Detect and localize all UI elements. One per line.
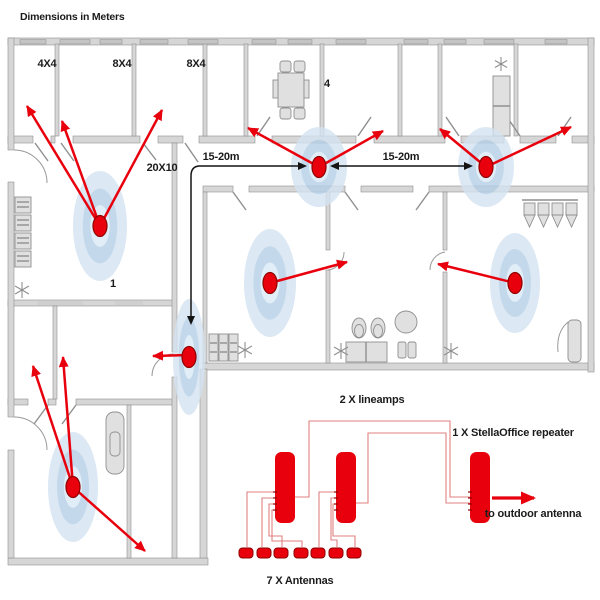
window (336, 40, 366, 45)
wire (356, 433, 470, 503)
room-label-8x4-b: 8X4 (187, 58, 207, 70)
window (288, 40, 312, 45)
door-swing-arc (152, 354, 174, 376)
room-label-1: 1 (110, 278, 116, 290)
schematic-antenna (257, 548, 271, 558)
wall (53, 306, 57, 399)
wall (8, 558, 208, 565)
antenna-dot (263, 273, 277, 294)
wall (158, 136, 183, 143)
wiring-schematic-layer (239, 421, 534, 558)
wall (326, 270, 330, 363)
antenna-dot (479, 157, 493, 178)
window (545, 40, 567, 45)
door-swing-arc (558, 322, 568, 352)
wall (172, 377, 177, 558)
wall (361, 186, 413, 192)
door-leaf (143, 143, 156, 160)
radiator-box (15, 197, 31, 213)
snowflake-icon (21, 289, 23, 291)
wall (51, 136, 55, 143)
wall (8, 182, 14, 417)
door-panel (568, 320, 581, 362)
shelf-box (219, 334, 228, 361)
door-swing-arc (14, 417, 47, 450)
window (404, 40, 428, 45)
round-table (395, 311, 417, 333)
wall (199, 136, 255, 143)
repeater-label: 1 X StellaOffice repeater (452, 427, 574, 439)
wall (588, 38, 594, 372)
measure-label-left: 15-20m (203, 151, 240, 163)
coat-rack-hook (538, 203, 549, 215)
schematic-antenna (347, 548, 361, 558)
wall (398, 44, 402, 136)
window (100, 40, 122, 45)
outdoor-antenna-label: to outdoor antenna (485, 508, 583, 520)
radiator-box (15, 233, 31, 249)
wall (320, 44, 324, 136)
coat-rack-point (566, 215, 577, 227)
coat-rack-hook (566, 203, 577, 215)
wall-opening (38, 301, 83, 305)
table-rail (304, 80, 309, 98)
window (188, 40, 218, 45)
lineamp-2 (336, 452, 356, 523)
coat-rack-point (538, 215, 549, 227)
window (60, 40, 90, 45)
wall (200, 369, 207, 558)
chair (294, 61, 305, 72)
wall (8, 300, 175, 306)
coat-rack-hook (552, 203, 563, 215)
wall (429, 186, 594, 192)
window (444, 40, 466, 45)
conference-table (278, 73, 304, 107)
wall (438, 44, 442, 136)
chair (280, 108, 291, 119)
door-leaf (446, 117, 459, 136)
shelf-box (209, 334, 218, 361)
wire (319, 492, 337, 547)
antenna-dot (182, 347, 196, 368)
table-rail (273, 80, 278, 98)
snowflake-icon (500, 63, 502, 65)
chair (280, 61, 291, 72)
door-leaf (35, 143, 48, 161)
window (20, 40, 46, 45)
measure-label-right: 15-20m (383, 151, 420, 163)
wall-opening (115, 301, 143, 305)
schematic-antenna (329, 548, 343, 558)
lineamps-label: 2 X lineamps (340, 394, 405, 406)
screenshot-canvas: Dimensions in Meters 4X4 8X4 8X4 4 20X10… (0, 0, 600, 600)
door-leaf (185, 143, 198, 162)
window (484, 40, 514, 45)
schematic-antenna (294, 548, 308, 558)
snowflake-icon (450, 350, 452, 352)
coat-rack-point (524, 215, 535, 227)
wall (443, 272, 447, 363)
wall (203, 186, 233, 192)
door-swing-arc (14, 150, 47, 183)
wall (48, 399, 56, 405)
shelf-box (229, 334, 238, 361)
antenna-dot (312, 157, 326, 178)
antenna-dot (66, 477, 80, 498)
radiator-box (15, 251, 31, 267)
antennas-count-label: 7 X Antennas (267, 575, 334, 587)
window (140, 40, 168, 45)
room-label-20x10: 20X10 (147, 162, 178, 174)
antenna-dot (508, 273, 522, 294)
wall (73, 136, 140, 143)
floorplan-diagram: Dimensions in Meters 4X4 8X4 8X4 4 20X10… (0, 0, 600, 600)
door-swing-arc (430, 252, 445, 270)
room-label-8x4-a: 8X4 (113, 58, 133, 70)
wire (295, 421, 470, 497)
door-leaf (233, 192, 246, 210)
chair (294, 108, 305, 119)
door-leaf (345, 192, 358, 210)
antenna-dot (93, 216, 107, 237)
schematic-antenna (239, 548, 253, 558)
room-label-4x4: 4X4 (38, 58, 58, 70)
wall (76, 399, 175, 405)
schematic-antenna (274, 548, 288, 558)
door-leaf (416, 192, 429, 210)
wall (374, 136, 445, 143)
toilet-seat (355, 325, 364, 338)
lineamp-1 (275, 452, 295, 523)
toilet-seat (374, 325, 383, 338)
coat-rack-point (552, 215, 563, 227)
schematic-antenna (311, 548, 325, 558)
wall (443, 192, 447, 250)
wall (514, 44, 518, 136)
wall (244, 44, 248, 136)
room-label-4: 4 (324, 78, 331, 90)
radiator-box (15, 215, 31, 231)
wall (8, 38, 14, 150)
window (252, 40, 276, 45)
snowflake-icon (244, 349, 246, 351)
snowflake-icon (340, 350, 342, 352)
bathtub-inner (110, 432, 120, 456)
door-leaf (358, 117, 371, 136)
page-title: Dimensions in Meters (20, 11, 125, 23)
stool (408, 342, 416, 358)
stool (398, 342, 406, 358)
wall (172, 143, 177, 352)
coat-rack-hook (524, 203, 535, 215)
wall (132, 44, 136, 136)
wall (203, 363, 594, 370)
antenna-dots-layer (66, 157, 522, 498)
wall (8, 450, 14, 558)
